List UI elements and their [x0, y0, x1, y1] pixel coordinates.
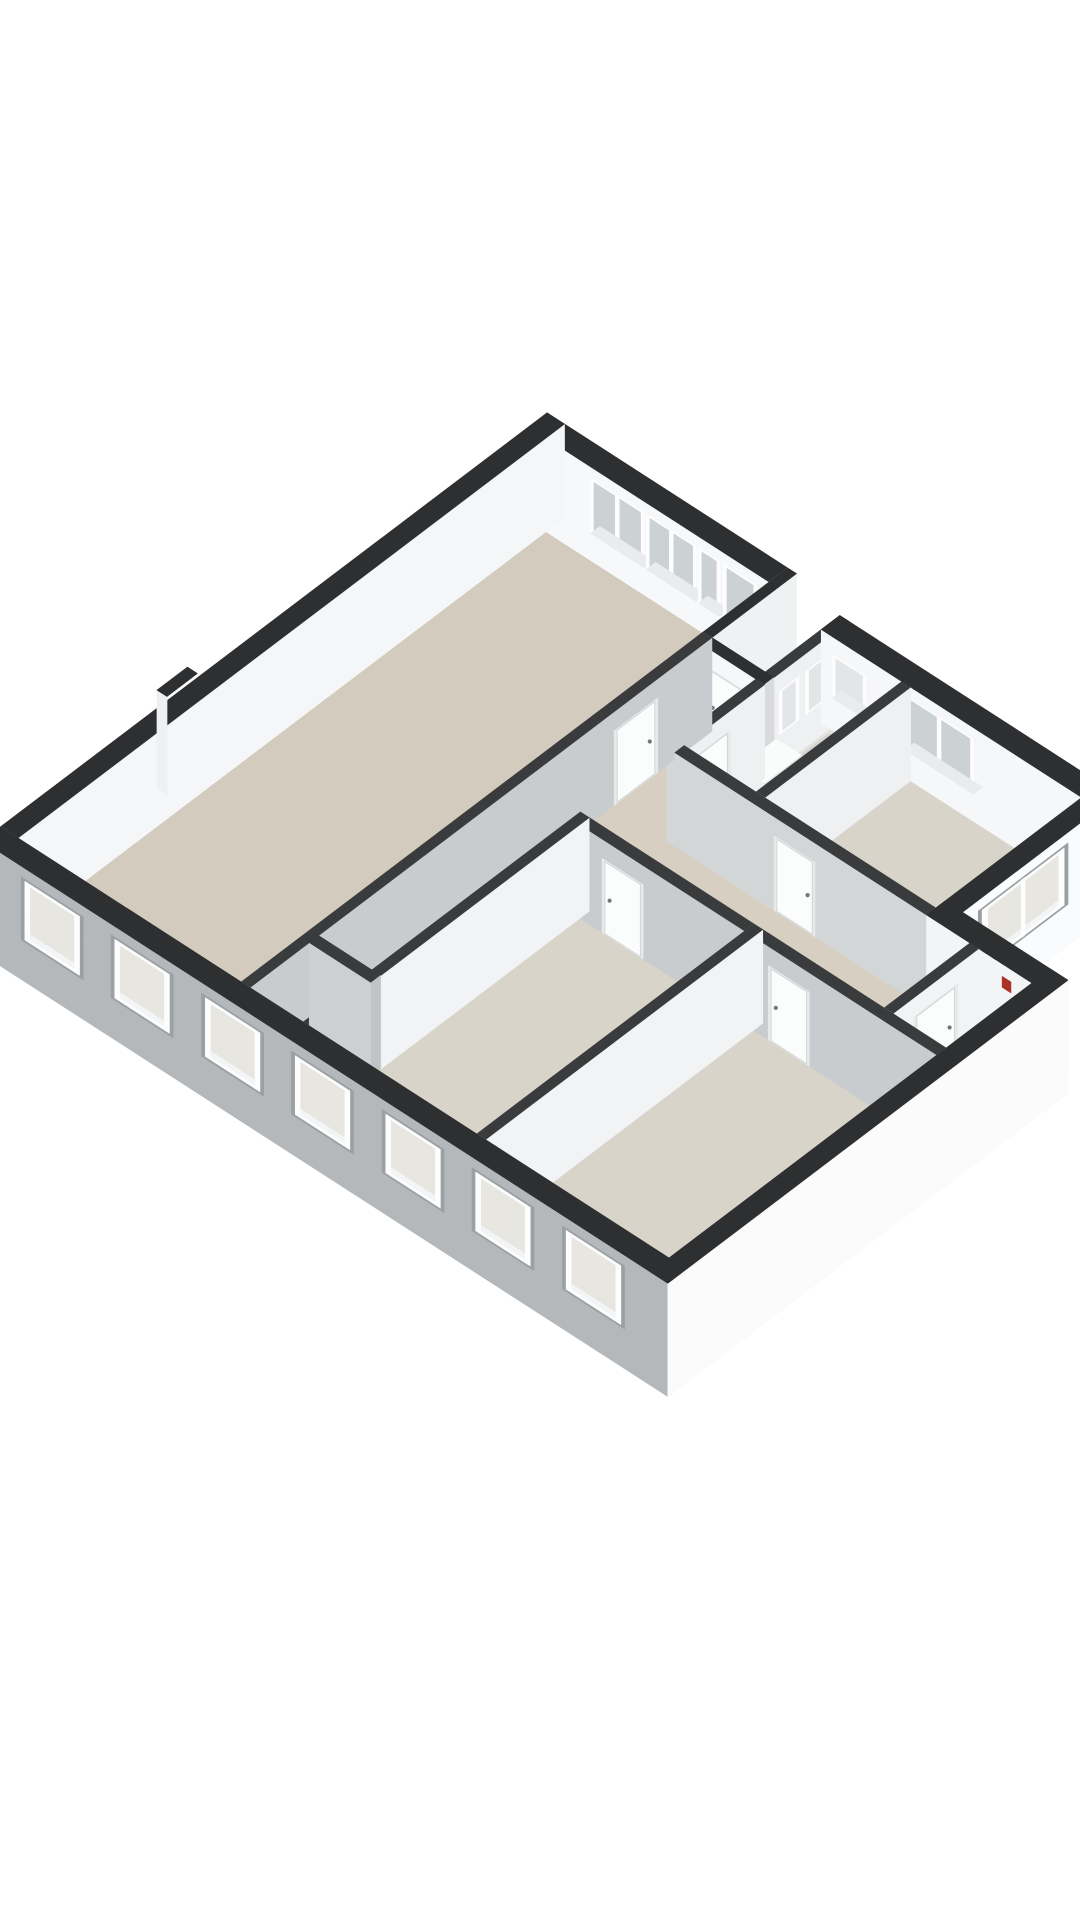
door-handle	[948, 1025, 952, 1029]
page	[0, 0, 1080, 1920]
window-mullion	[1021, 877, 1025, 938]
door-handle	[806, 893, 810, 897]
door-handle	[608, 899, 612, 903]
wall-closet-north-cap	[371, 976, 380, 1077]
floor-plan-3d-render	[0, 0, 1080, 1920]
chimney-front	[157, 690, 167, 794]
door-handle	[648, 739, 652, 743]
door-handle	[774, 1006, 778, 1010]
